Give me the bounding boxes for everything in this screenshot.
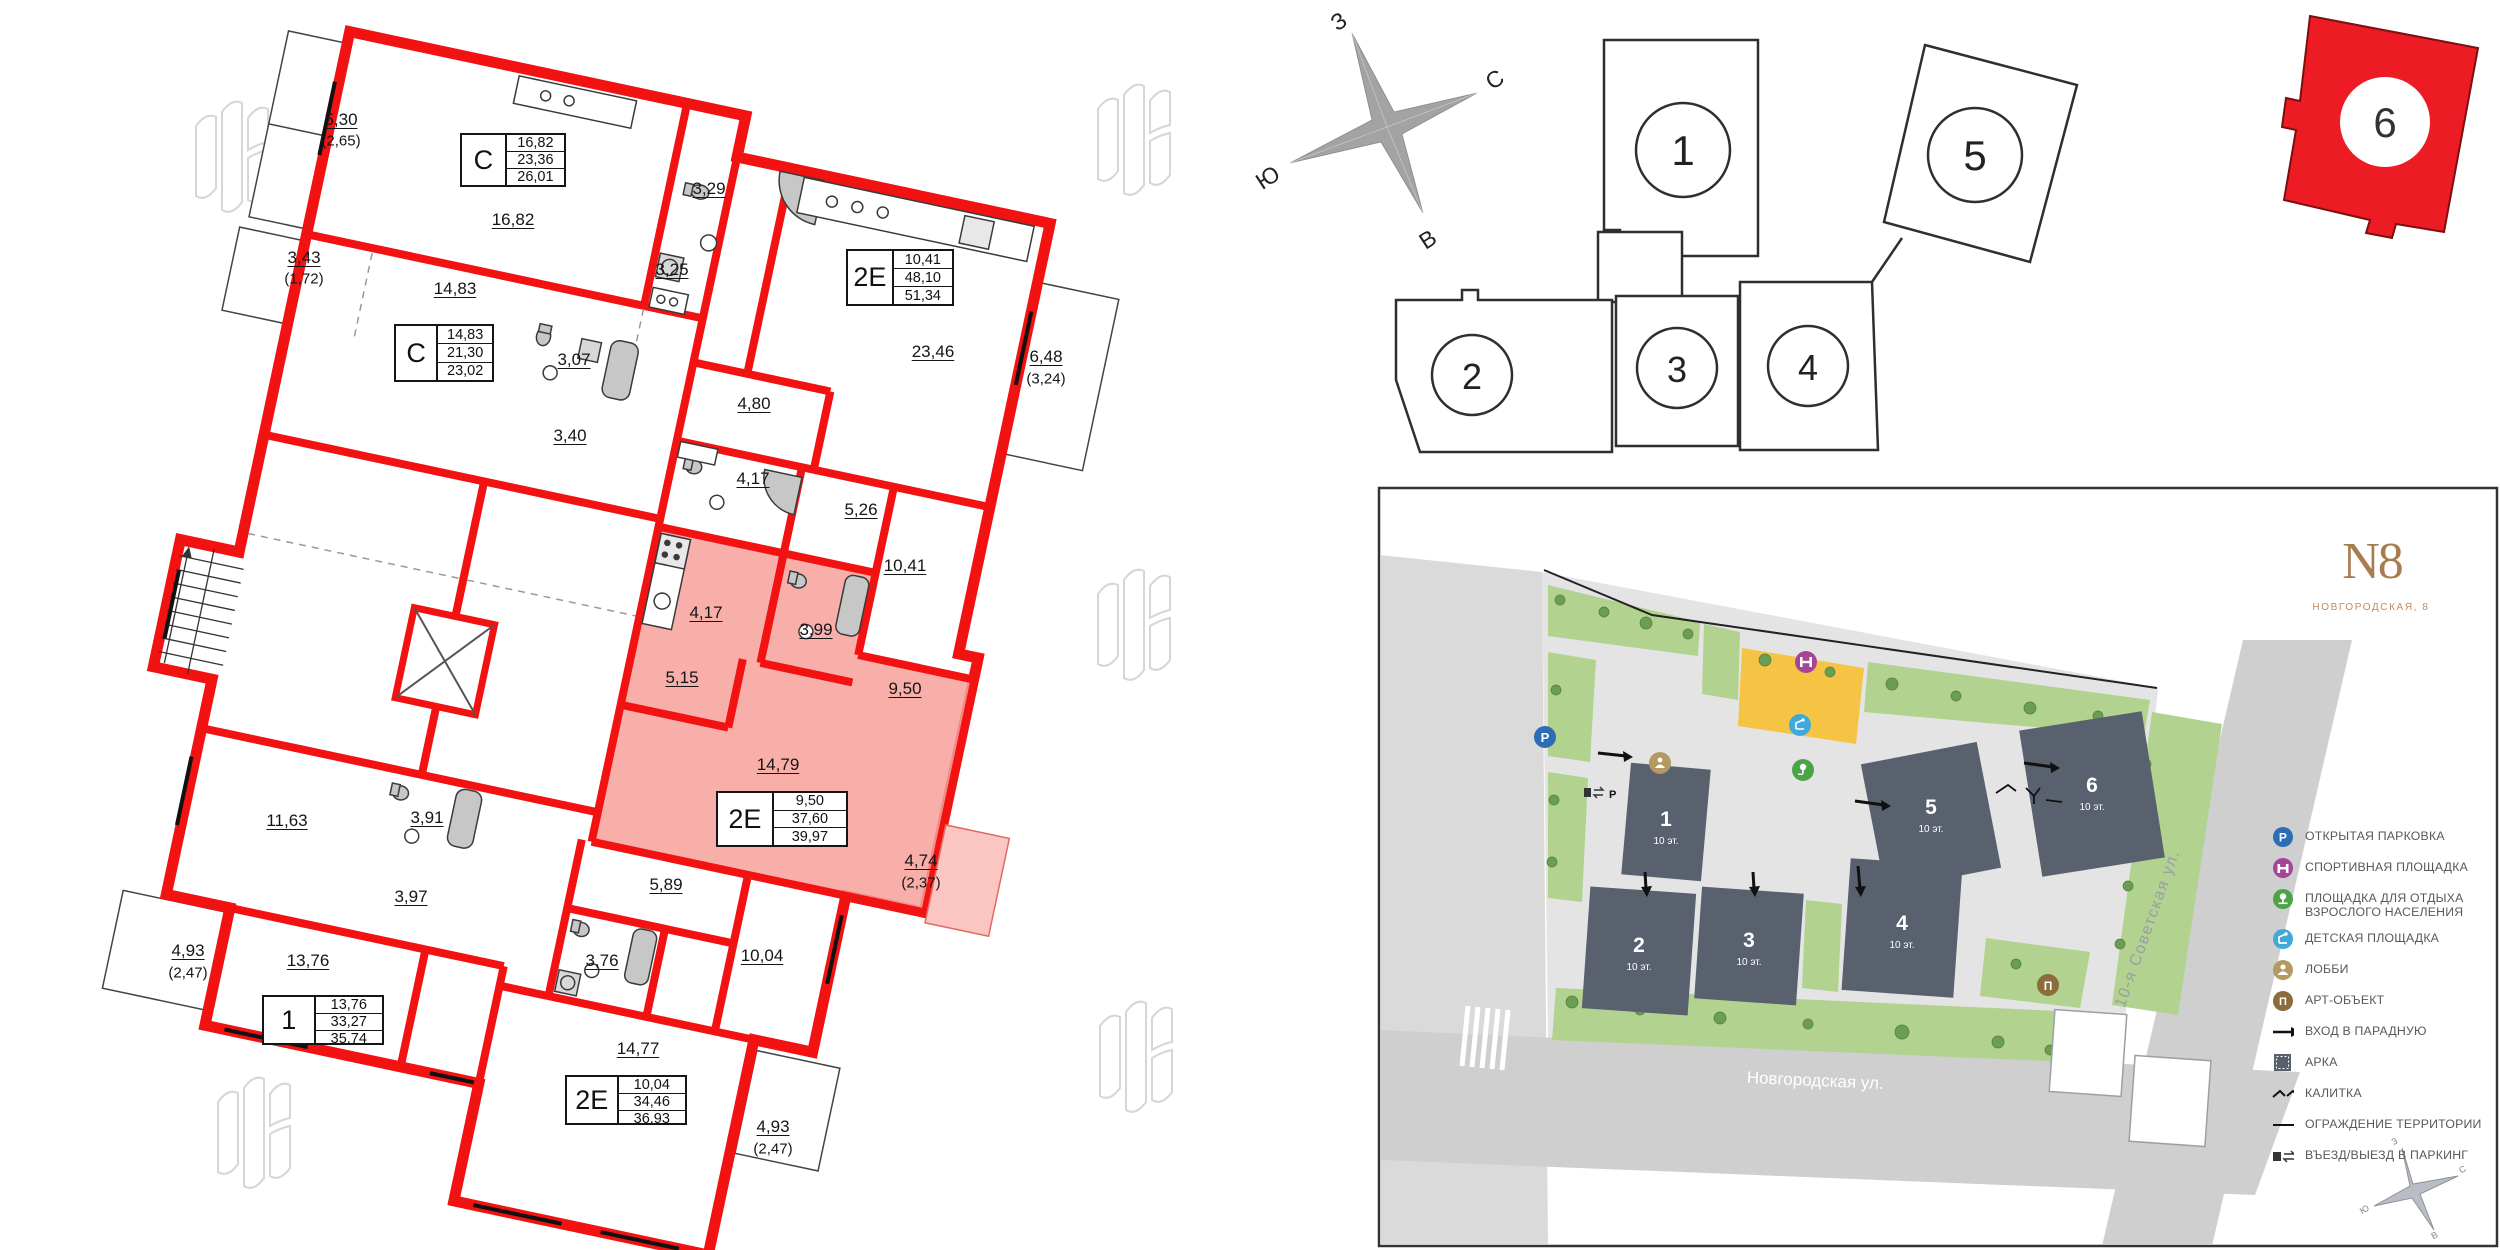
legend-item: ПЛОЩАДКА ДЛЯ ОТДЫХА ВЗРОСЛОГО НАСЕЛЕНИЯ <box>2272 888 2482 919</box>
room-area-label: 4,93 <box>171 941 204 961</box>
building-4-number: 4 <box>1896 912 1908 935</box>
project-logo-subtitle: НОВГОРОДСКАЯ, 8 <box>2286 602 2456 613</box>
fence-icon <box>2272 1114 2294 1136</box>
room-area-label: 3,07 <box>557 350 590 370</box>
masterplan-legend: P ОТКРЫТАЯ ПАРКОВКА СПОРТИВНАЯ ПЛОЩАДКА … <box>2272 826 2482 1176</box>
background-graphics: З С Ю В 1 5 2 3 4 6 <box>0 0 2500 1250</box>
room-area-label: 6,48 <box>1029 347 1062 367</box>
room-area-label: 4,17 <box>736 469 769 489</box>
building-3-floors: 10 эт. <box>1736 957 1761 968</box>
room-area-label: 3,99 <box>799 620 832 640</box>
room-area-label: 5,30 <box>324 110 357 130</box>
section-2-number[interactable]: 2 <box>1462 356 1482 397</box>
room-area-label: 23,46 <box>912 342 955 362</box>
room-area-label: 14,77 <box>617 1039 660 1059</box>
compass-west-label: З <box>1326 7 1352 36</box>
building-5-floors: 10 эт. <box>1918 824 1943 835</box>
room-area-label: 4,17 <box>689 603 722 623</box>
room-area-label: (3,24) <box>1026 371 1065 388</box>
unit-spec-2e-top: 2Е 10,41 48,10 51,34 <box>846 249 954 306</box>
unit-spec-studio-2: С 14,83 21,30 23,02 <box>394 324 494 382</box>
room-area-label: (2,65) <box>321 133 360 150</box>
lobby-icon <box>2272 959 2294 981</box>
map-parking-icon: P <box>1534 726 1556 748</box>
map-art-object-icon: П <box>2037 974 2059 996</box>
room-area-label: 11,63 <box>266 811 307 831</box>
svg-text:П: П <box>2279 996 2287 1008</box>
legend-item: КАЛИТКА <box>2272 1083 2482 1105</box>
building-1-number: 1 <box>1660 808 1672 831</box>
sport-icon <box>2272 857 2294 879</box>
room-area-label: 14,83 <box>434 279 477 299</box>
room-area-label: 4,74 <box>904 851 937 871</box>
room-area-label: (1,72) <box>284 271 323 288</box>
section-6-number: 6 <box>2373 99 2396 146</box>
legend-item: СПОРТИВНАЯ ПЛОЩАДКА <box>2272 857 2482 879</box>
building-1-floors: 10 эт. <box>1653 836 1678 847</box>
adult-rest-icon <box>2272 888 2294 910</box>
svg-text:P: P <box>1609 789 1616 801</box>
room-area-label: 3,29 <box>692 179 725 199</box>
svg-text:П: П <box>2044 979 2053 993</box>
room-area-label: 5,89 <box>649 875 682 895</box>
compass-east-label: В <box>1414 224 1441 254</box>
room-area-label: 5,15 <box>665 668 698 688</box>
room-area-label: (2,47) <box>753 1141 792 1158</box>
unit-spec-1room: 1 13,76 33,27 35,74 <box>262 995 384 1045</box>
map-sport-icon <box>1795 651 1817 673</box>
compass-north-label: С <box>1481 64 1509 95</box>
room-area-label: 3,40 <box>553 426 586 446</box>
room-area-label: 13,76 <box>287 951 330 971</box>
legend-item: ВХОД В ПАРАДНУЮ <box>2272 1021 2482 1043</box>
building-5-number: 5 <box>1925 796 1937 819</box>
room-area-label: 16,82 <box>492 210 535 230</box>
section-5-number[interactable]: 5 <box>1963 132 1986 179</box>
room-area-label: 4,93 <box>756 1117 789 1137</box>
room-area-label: 3,91 <box>410 808 443 828</box>
gate-icon <box>2272 1083 2294 1105</box>
room-area-label: 3,97 <box>394 887 427 907</box>
art-icon: П <box>2272 990 2294 1012</box>
unit-spec-2e-highlighted[interactable]: 2Е 9,50 37,60 39,97 <box>716 791 848 847</box>
legend-item: ОГРАЖДЕНИЕ ТЕРРИТОРИИ <box>2272 1114 2482 1136</box>
apartment-plan-page: З С Ю В 1 5 2 3 4 6 <box>0 0 2500 1250</box>
legend-item: АРКА <box>2272 1052 2482 1074</box>
room-area-label: 5,26 <box>844 500 877 520</box>
room-area-label: 10,04 <box>741 946 784 966</box>
elevator-shaft <box>395 608 494 715</box>
building-2-number: 2 <box>1633 934 1645 957</box>
section-2-shape[interactable] <box>1396 290 1612 452</box>
room-area-label: (2,37) <box>901 875 940 892</box>
map-lobby-icon <box>1649 752 1671 774</box>
building-6-number: 6 <box>2086 774 2098 797</box>
room-area-label: 3,76 <box>585 951 618 971</box>
building-4-floors: 10 эт. <box>1889 940 1914 951</box>
building-3-number: 3 <box>1743 929 1755 952</box>
svg-text:P: P <box>2279 831 2287 845</box>
room-area-label: 4,80 <box>737 394 770 414</box>
room-area-label: 14,79 <box>757 755 800 775</box>
unit-spec-studio-1: С 16,82 23,36 26,01 <box>460 133 566 187</box>
project-logo: N8 <box>2312 534 2432 590</box>
legend-item: ЛОББИ <box>2272 959 2482 981</box>
legend-item: ДЕТСКАЯ ПЛОЩАДКА <box>2272 928 2482 950</box>
legend-item: П АРТ-ОБЪЕКТ <box>2272 990 2482 1012</box>
map-adult-rest-icon <box>1792 759 1814 781</box>
entrance-arrow-icon <box>2272 1021 2294 1043</box>
compass-south-label: Ю <box>1251 160 1285 194</box>
section-3-number[interactable]: 3 <box>1667 349 1687 390</box>
map-kids-icon <box>1789 714 1811 736</box>
room-area-label: 3,43 <box>287 248 320 268</box>
room-area-label: 10,41 <box>884 556 927 576</box>
parking-icon: P <box>2272 826 2294 848</box>
parking-entry-icon: P <box>2272 1145 2294 1167</box>
room-area-label: 3,25 <box>655 260 688 280</box>
kids-icon <box>2272 928 2294 950</box>
legend-item: P ОТКРЫТАЯ ПАРКОВКА <box>2272 826 2482 848</box>
unit-spec-2e-bottom: 2Е 10,04 34,46 36,93 <box>565 1075 687 1125</box>
section-1-number[interactable]: 1 <box>1671 127 1694 174</box>
floor-plan <box>51 18 1145 1250</box>
legend-item: P ВЪЕЗД/ВЫЕЗД В ПАРКИНГ <box>2272 1145 2482 1167</box>
arch-icon <box>2272 1052 2294 1074</box>
section-6-selected[interactable]: 6 <box>2282 16 2478 238</box>
compass: З С Ю В <box>1251 7 1509 255</box>
svg-text:P: P <box>1541 730 1550 745</box>
room-area-label: (2,47) <box>168 965 207 982</box>
room-area-label: 9,50 <box>888 679 921 699</box>
section-connector <box>1598 232 1682 302</box>
section-picker: 1 5 2 3 4 <box>1396 40 2077 452</box>
building-2-floors: 10 эт. <box>1626 962 1651 973</box>
section-4-number[interactable]: 4 <box>1798 347 1818 388</box>
building-6-floors: 10 эт. <box>2079 802 2104 813</box>
